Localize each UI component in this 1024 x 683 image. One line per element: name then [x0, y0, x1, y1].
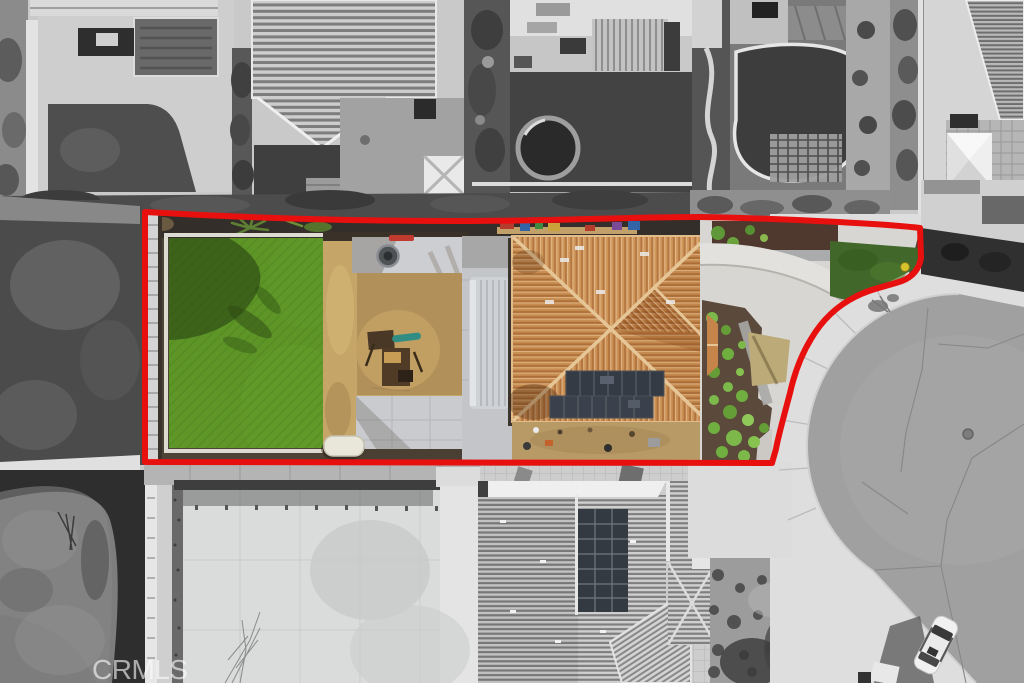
svg-text:CRMLS: CRMLS: [92, 654, 188, 683]
